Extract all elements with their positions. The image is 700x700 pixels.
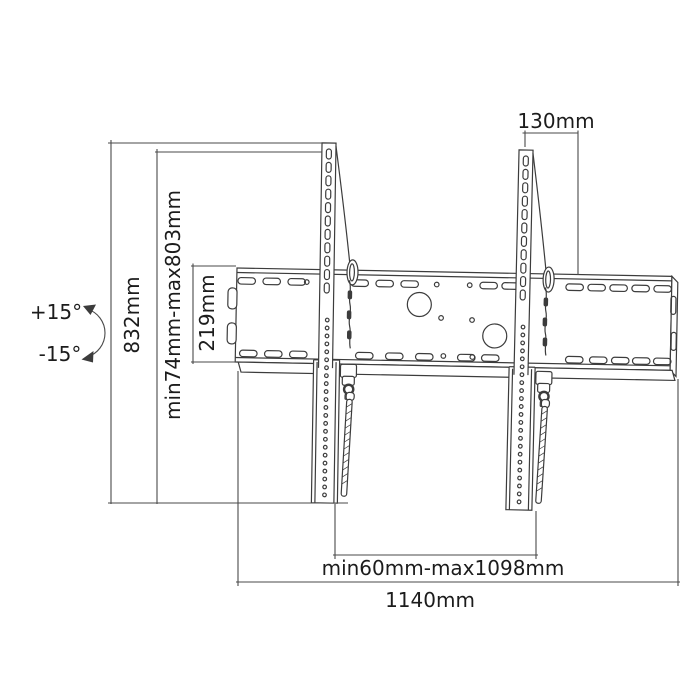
tilt-arc [82,305,105,363]
wall-plate-face [235,268,672,370]
wall-mount-dimension-diagram: +15° -15° 832mm min74mm-max803mm 219mm 1… [0,0,700,700]
label-wall-plate-width: 1140mm [385,588,475,612]
dim-line-1140mm [236,371,680,586]
label-total-height: 832mm [120,276,144,353]
label-spacing-range: min60mm-max1098mm [322,556,565,580]
diagram-canvas: +15° -15° 832mm min74mm-max803mm 219mm 1… [0,0,700,700]
tilt-arrow-down-icon [82,351,94,363]
label-top-offset: 130mm [517,109,594,133]
wall-plate [227,268,678,381]
tilt-arrow-up-icon [83,305,96,316]
label-tilt-down: -15° [39,342,82,366]
label-tilt-up: +15° [30,300,82,324]
label-height-range: min74mm-max803mm [161,190,185,420]
label-wall-plate-height: 219mm [195,274,219,351]
dim-line-spacing-range [333,504,538,559]
